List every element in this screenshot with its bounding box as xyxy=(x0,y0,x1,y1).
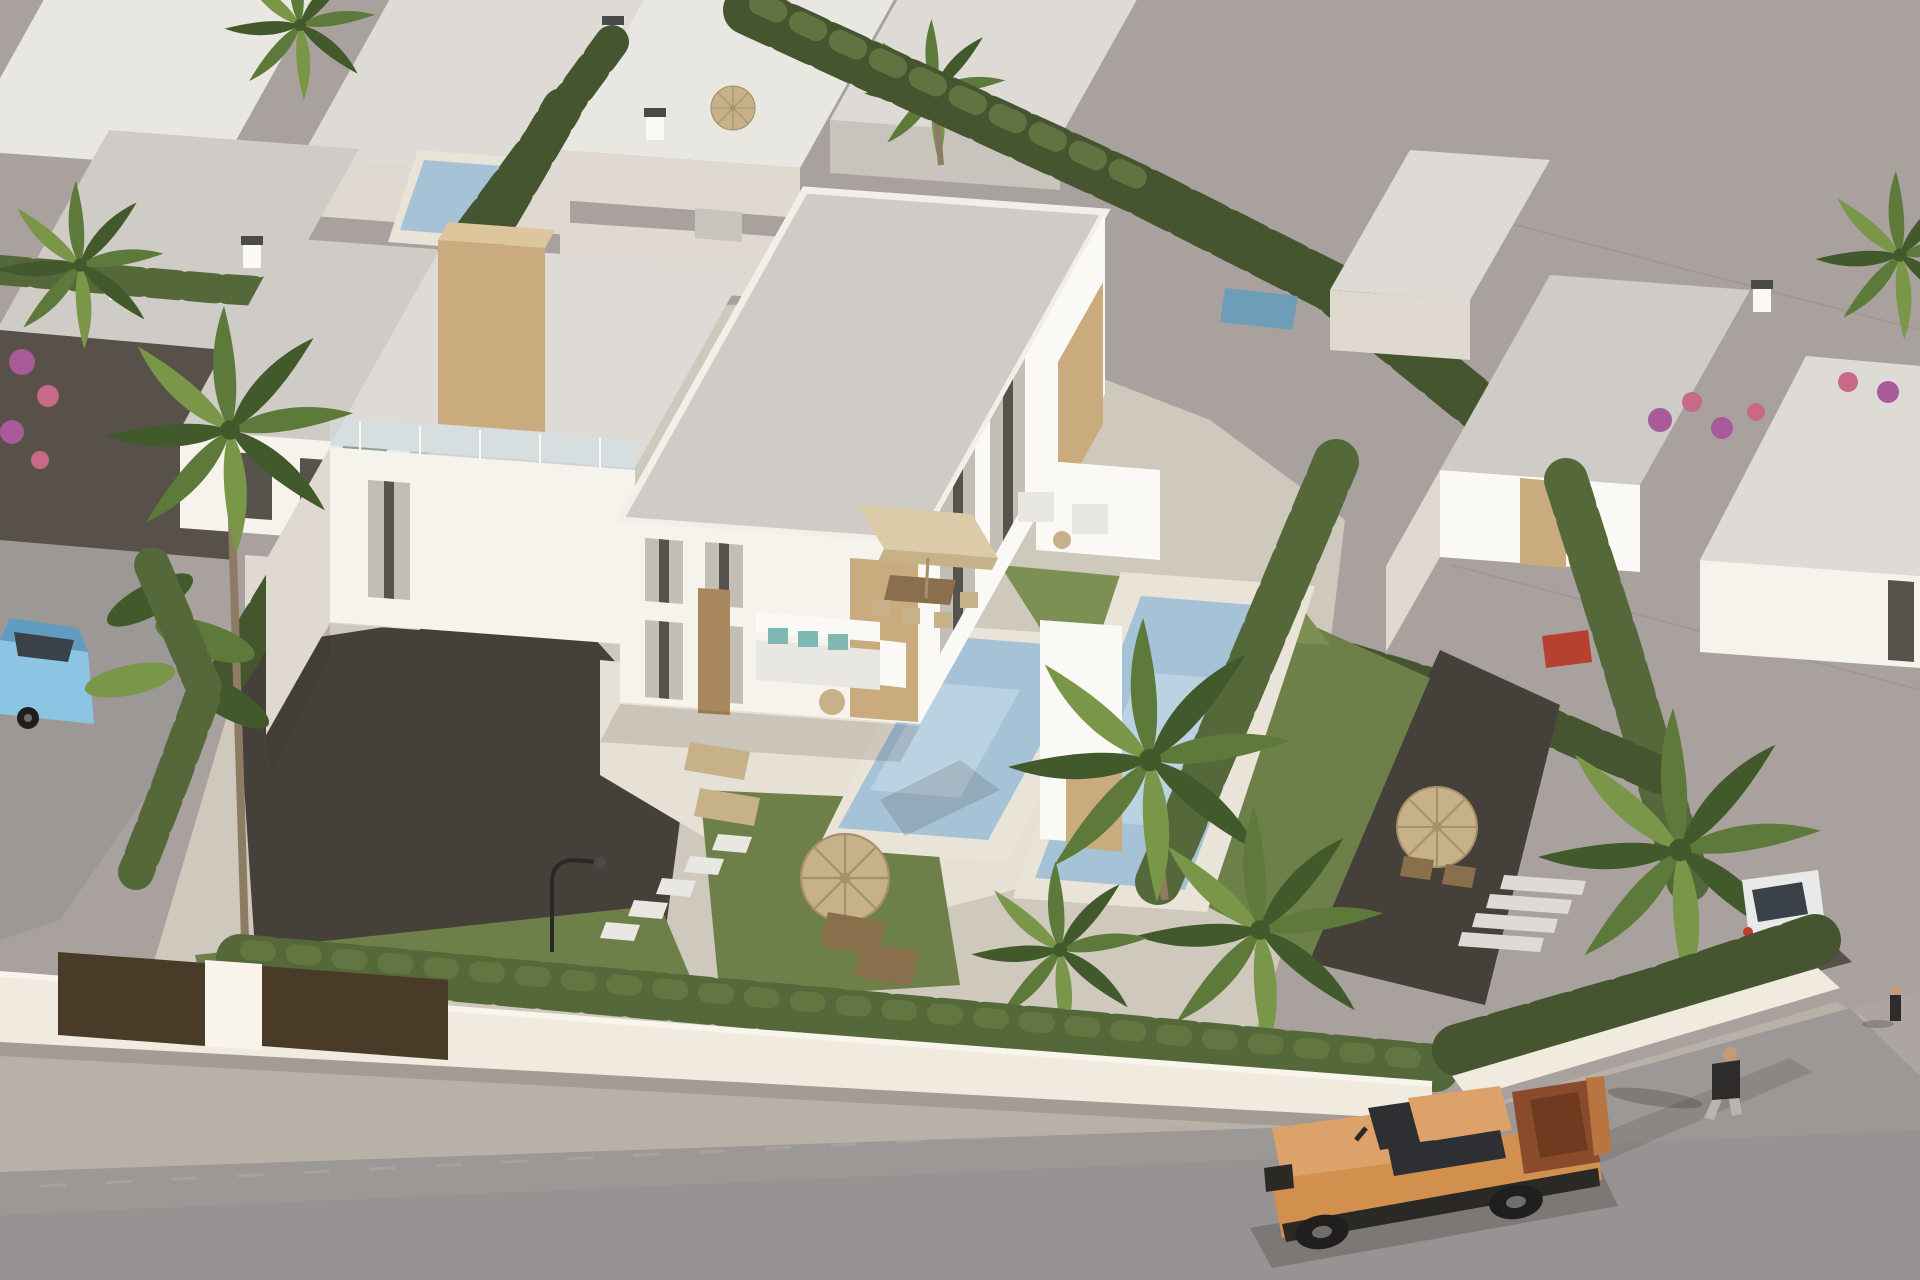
chimney xyxy=(644,108,666,140)
armchair xyxy=(1072,504,1108,534)
gate-pillar xyxy=(205,960,262,1050)
stone-pillar-small xyxy=(698,588,730,715)
armchair xyxy=(1018,492,1054,522)
stone-slab-tall xyxy=(438,240,545,432)
red-garden-vehicle xyxy=(1542,630,1592,668)
pedestrian-head xyxy=(1723,1047,1737,1061)
distant-pedestrian-head xyxy=(1891,985,1901,995)
car-wheel-hub xyxy=(24,714,32,722)
villa-window xyxy=(1888,580,1914,662)
wooden-chair xyxy=(1442,864,1476,888)
blue-car xyxy=(0,618,94,729)
dining-table xyxy=(884,575,956,605)
thatch-parasol xyxy=(801,834,889,922)
thatch-parasol-small xyxy=(711,86,755,130)
wooden-chair xyxy=(1400,856,1434,880)
distant-pedestrian-body xyxy=(1890,995,1901,1021)
chimney xyxy=(241,236,263,268)
villa-wall xyxy=(1330,290,1470,360)
villa-wall xyxy=(1700,560,1920,668)
side-table xyxy=(1053,531,1071,549)
gate-dark xyxy=(262,966,448,1060)
distant-pedestrian-shadow xyxy=(1862,1020,1894,1028)
coffee-table xyxy=(819,689,845,715)
render-canvas xyxy=(0,0,1920,1280)
truck-front-bumper xyxy=(1264,1164,1294,1192)
pedestrian-torso xyxy=(1712,1060,1740,1100)
thatch-parasol xyxy=(1397,787,1477,867)
sofa-side xyxy=(880,640,906,688)
parasol-pole xyxy=(926,558,928,598)
gate-dark xyxy=(58,952,205,1046)
roof-ac-unit xyxy=(695,208,742,242)
wing-window-slit xyxy=(384,481,394,599)
truck-bed-groove xyxy=(1530,1092,1588,1158)
chimney xyxy=(1751,280,1773,312)
